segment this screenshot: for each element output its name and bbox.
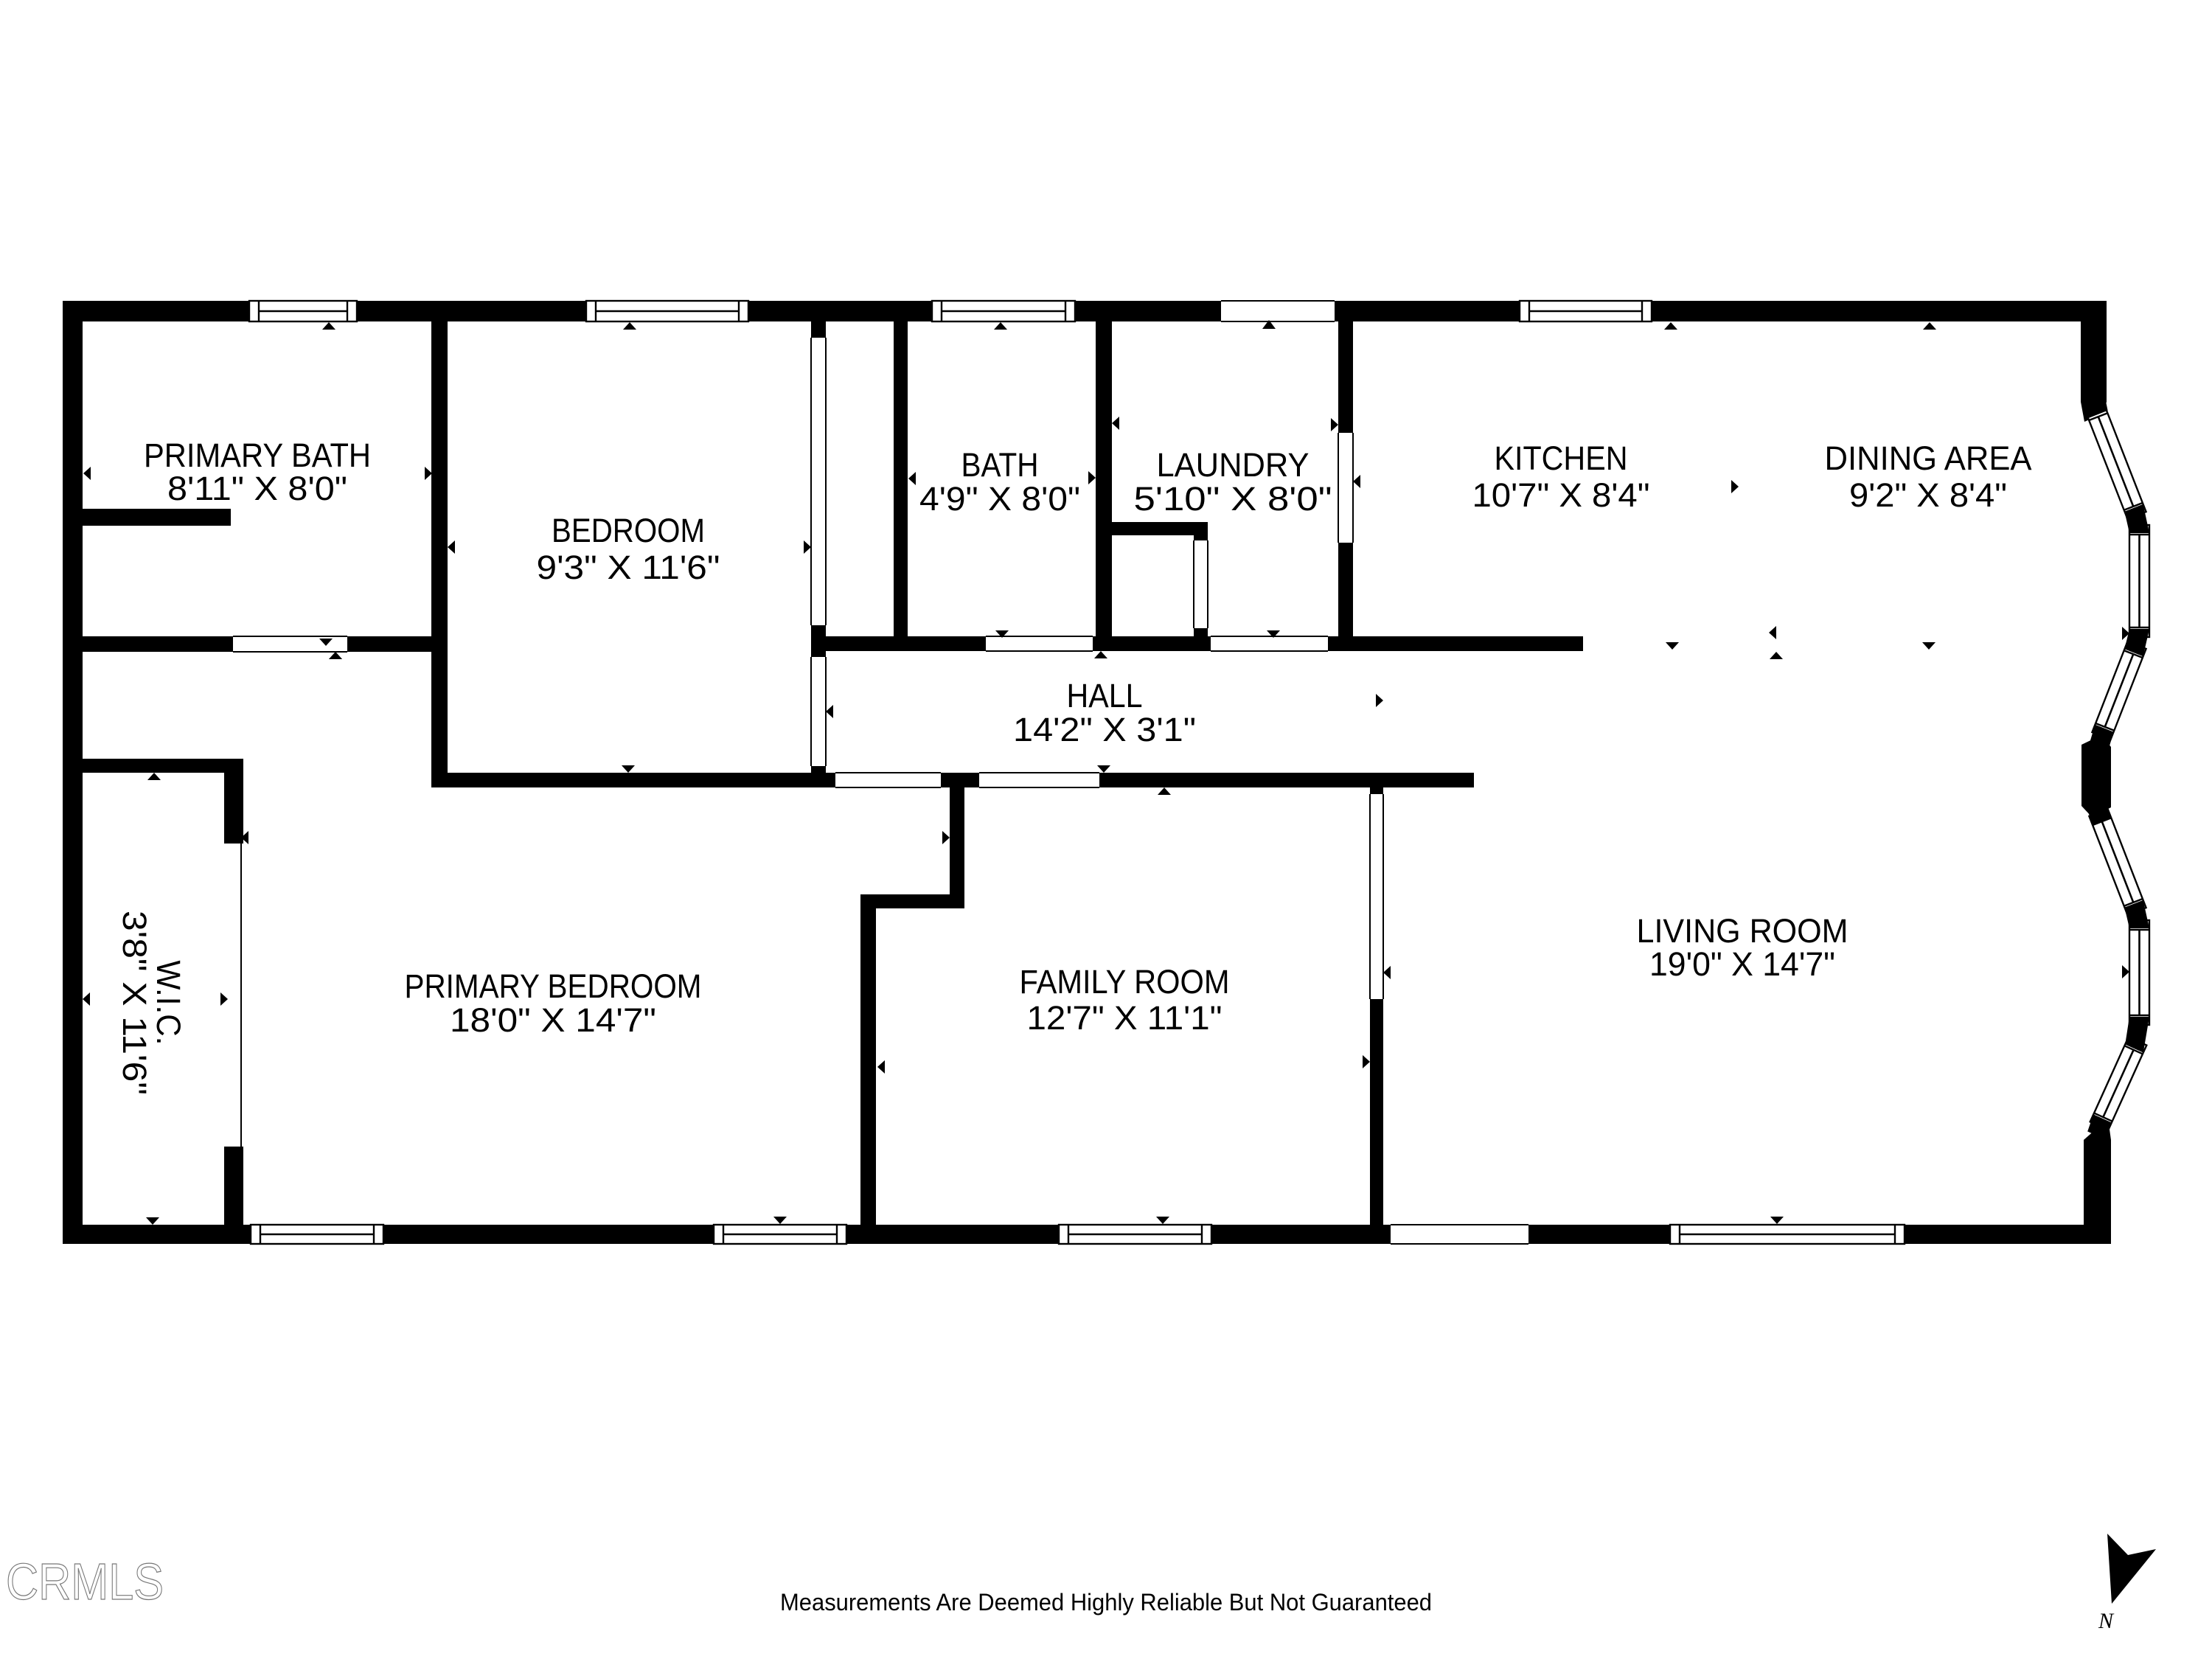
svg-text:18'0" X 14'7": 18'0" X 14'7" (450, 1001, 656, 1039)
svg-text:BATH: BATH (961, 446, 1039, 484)
svg-text:HALL: HALL (1067, 677, 1143, 714)
svg-text:KITCHEN: KITCHEN (1495, 439, 1628, 477)
svg-text:5'10" X 8'0": 5'10" X 8'0" (1134, 480, 1332, 518)
svg-text:LAUNDRY: LAUNDRY (1157, 446, 1310, 484)
svg-text:CRMLS: CRMLS (6, 1553, 164, 1610)
svg-text:12'7" X 11'1": 12'7" X 11'1" (1027, 999, 1222, 1037)
svg-text:PRIMARY BEDROOM: PRIMARY BEDROOM (405, 967, 702, 1005)
svg-text:9'3" X 11'6": 9'3" X 11'6" (537, 549, 720, 586)
svg-text:14'2" X 3'1": 14'2" X 3'1" (1013, 711, 1196, 748)
svg-text:W.I.C.: W.I.C. (150, 961, 187, 1046)
svg-text:FAMILY ROOM: FAMILY ROOM (1020, 963, 1230, 1001)
svg-text:10'7" X 8'4": 10'7" X 8'4" (1472, 476, 1650, 514)
svg-text:PRIMARY BATH: PRIMARY BATH (144, 437, 371, 474)
svg-text:LIVING ROOM: LIVING ROOM (1637, 912, 1848, 950)
svg-text:BEDROOM: BEDROOM (552, 512, 705, 549)
svg-text:Measurements Are Deemed Highly: Measurements Are Deemed Highly Reliable … (780, 1589, 1432, 1615)
svg-text:9'2" X 8'4": 9'2" X 8'4" (1849, 476, 2007, 514)
svg-text:N: N (2098, 1609, 2115, 1633)
svg-text:8'11" X 8'0": 8'11" X 8'0" (167, 470, 347, 507)
svg-text:4'9" X 8'0": 4'9" X 8'0" (919, 480, 1080, 518)
svg-text:3'8" X 11'6": 3'8" X 11'6" (116, 911, 153, 1095)
svg-text:DINING AREA: DINING AREA (1825, 439, 2032, 477)
svg-text:19'0" X 14'7": 19'0" X 14'7" (1649, 945, 1835, 983)
